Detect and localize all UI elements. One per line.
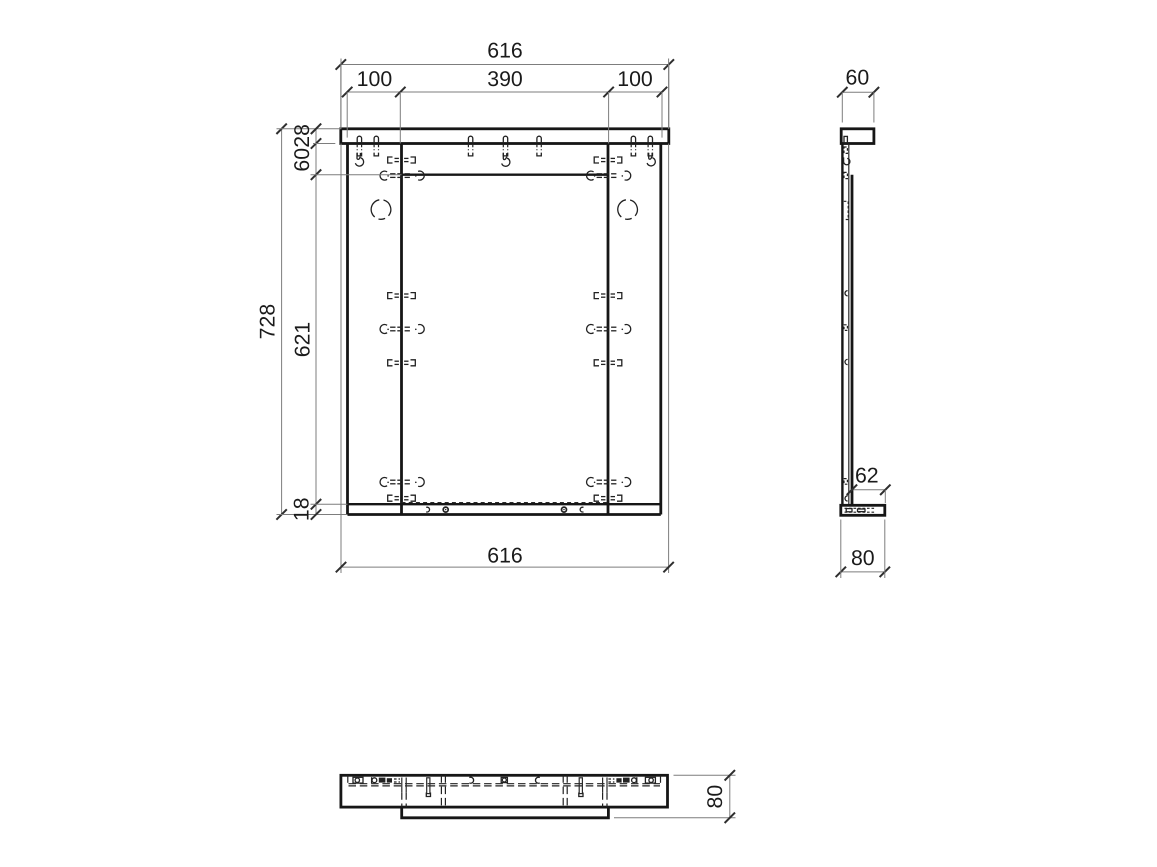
svg-text:62: 62 xyxy=(855,464,879,488)
svg-text:616: 616 xyxy=(487,543,523,567)
svg-text:728: 728 xyxy=(255,304,279,340)
svg-text:390: 390 xyxy=(487,67,523,91)
svg-text:80: 80 xyxy=(703,785,727,809)
svg-text:100: 100 xyxy=(617,67,653,91)
svg-text:60: 60 xyxy=(290,148,314,172)
svg-text:60: 60 xyxy=(846,66,870,90)
svg-text:80: 80 xyxy=(851,546,875,570)
svg-text:616: 616 xyxy=(487,39,523,63)
svg-text:621: 621 xyxy=(291,322,315,358)
svg-text:18: 18 xyxy=(289,497,313,521)
svg-text:28: 28 xyxy=(290,124,314,148)
svg-text:100: 100 xyxy=(357,67,393,91)
